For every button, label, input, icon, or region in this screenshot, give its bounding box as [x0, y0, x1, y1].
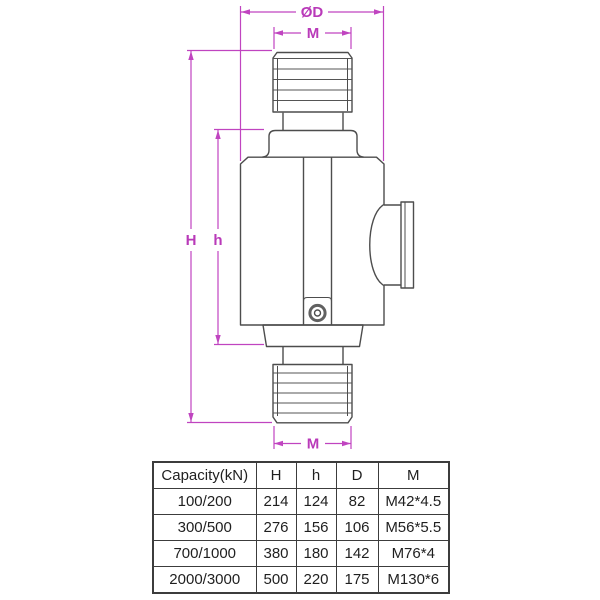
spec-cell: 124: [296, 489, 336, 515]
sealing-screw-icon: [310, 305, 325, 320]
bottom-neck: [283, 347, 343, 365]
load-cell-dimension-diagram: ØD M H h: [0, 0, 600, 460]
spec-cell: 214: [256, 489, 296, 515]
spec-header-h-upper: H: [256, 462, 296, 489]
bottom-flange: [263, 325, 363, 347]
dim-body-height: h: [213, 130, 264, 345]
spec-cell: M130*6: [378, 567, 449, 594]
spec-cell: 2000/3000: [153, 567, 256, 594]
spec-cell: 175: [336, 567, 378, 594]
spec-table: Capacity(kN) H h D M 100/200 214 124 82 …: [152, 461, 450, 594]
dim-label-outer-diameter: ØD: [301, 4, 324, 21]
spec-cell: 380: [256, 541, 296, 567]
spec-cell: 180: [296, 541, 336, 567]
spec-cell: 106: [336, 515, 378, 541]
dim-label-body-height: h: [213, 232, 222, 249]
spec-cell: 300/500: [153, 515, 256, 541]
spec-header-m: M: [378, 462, 449, 489]
spec-cell: 142: [336, 541, 378, 567]
dim-label-total-height: H: [186, 232, 197, 249]
dim-thread-bottom: M: [274, 426, 351, 453]
top-collar: [263, 131, 364, 158]
spec-cell: 100/200: [153, 489, 256, 515]
spec-cell: M76*4: [378, 541, 449, 567]
technical-drawing-page: ØD M H h: [0, 0, 600, 600]
spec-cell: M56*5.5: [378, 515, 449, 541]
dim-total-height: H: [186, 51, 272, 423]
dim-label-thread-top: M: [307, 25, 320, 42]
spec-table-header-row: Capacity(kN) H h D M: [153, 462, 449, 489]
top-threaded-stud: [273, 53, 352, 113]
spec-header-d: D: [336, 462, 378, 489]
load-cell-body: [241, 157, 385, 325]
spec-cell: 82: [336, 489, 378, 515]
bottom-threaded-stud: [273, 365, 352, 423]
spec-header-h-lower: h: [296, 462, 336, 489]
spec-row-700-1000: 700/1000 380 180 142 M76*4: [153, 541, 449, 567]
spec-cell: 220: [296, 567, 336, 594]
spec-row-300-500: 300/500 276 156 106 M56*5.5: [153, 515, 449, 541]
top-neck: [283, 113, 343, 131]
center-band: [304, 157, 332, 324]
spec-cell: M42*4.5: [378, 489, 449, 515]
spec-row-2000-3000: 2000/3000 500 220 175 M130*6: [153, 567, 449, 594]
spec-header-capacity: Capacity(kN): [153, 462, 256, 489]
dim-label-thread-bottom: M: [307, 436, 320, 453]
spec-row-100-200: 100/200 214 124 82 M42*4.5: [153, 489, 449, 515]
dim-thread-top: M: [274, 25, 351, 49]
spec-cell: 500: [256, 567, 296, 594]
cable-connector: [384, 202, 414, 288]
spec-cell: 276: [256, 515, 296, 541]
spec-cell: 156: [296, 515, 336, 541]
spec-cell: 700/1000: [153, 541, 256, 567]
